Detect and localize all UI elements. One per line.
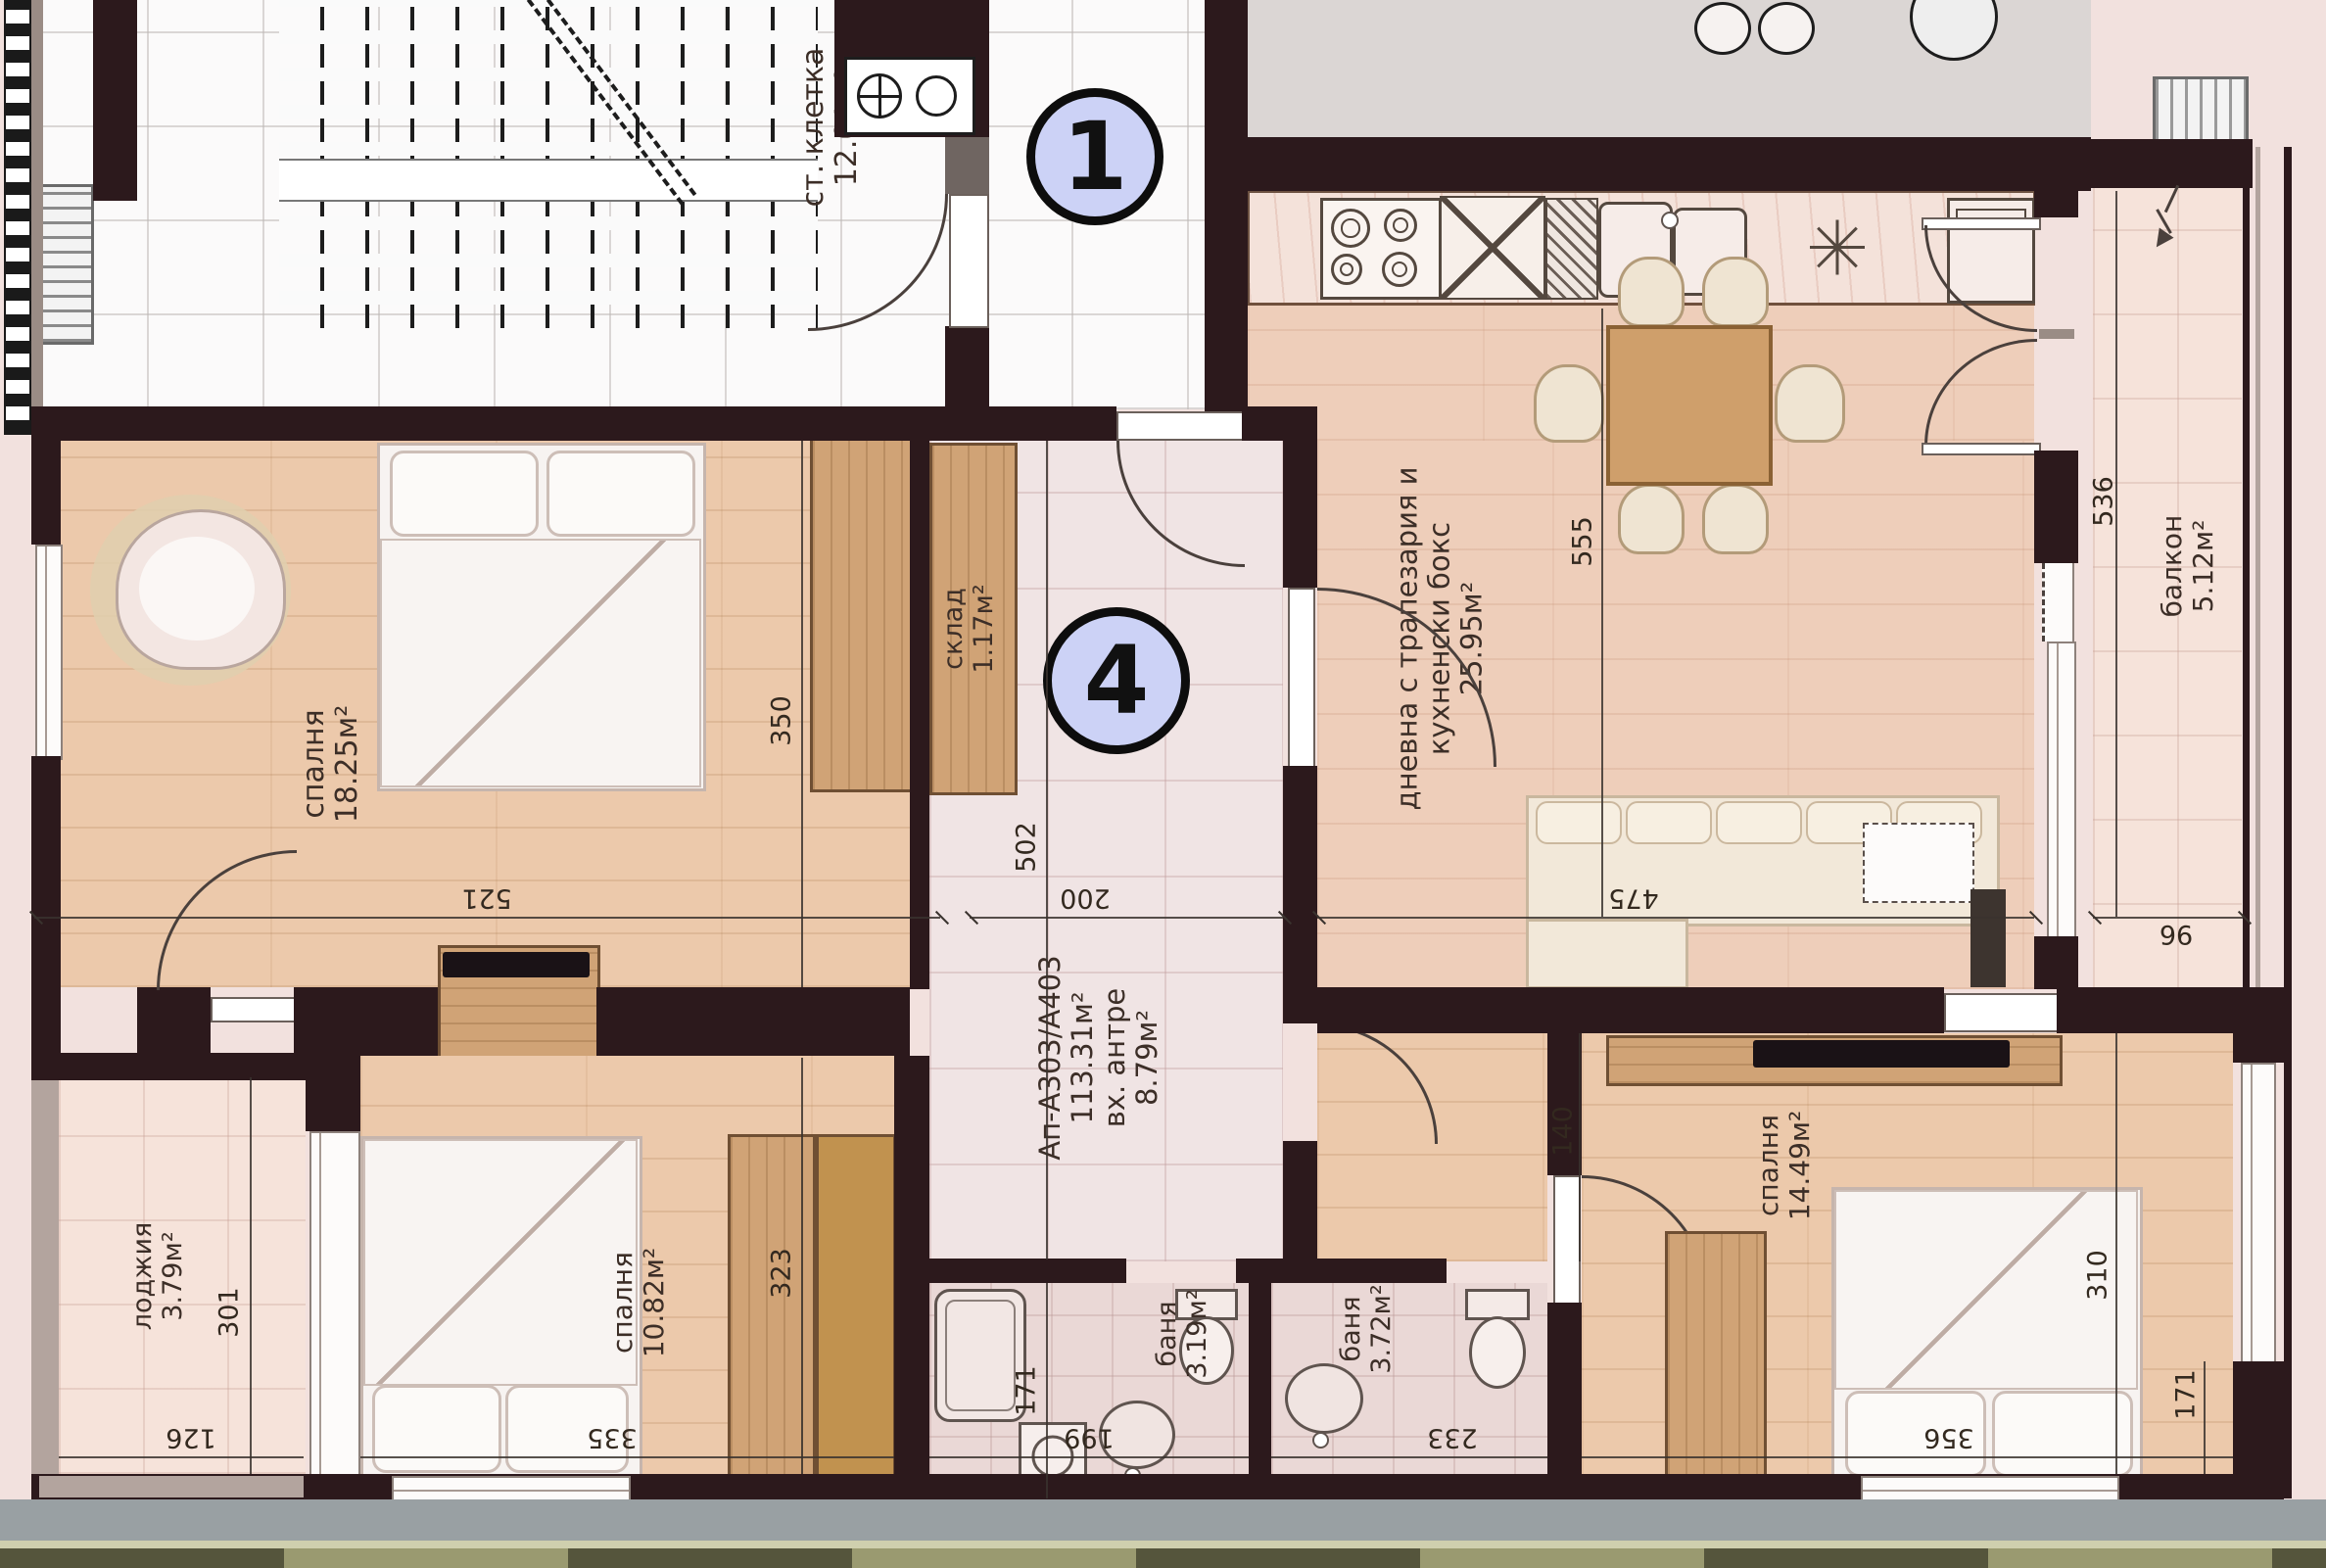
room-label-bedroom-bottom-left: спалня 10.82м² bbox=[607, 1248, 670, 1358]
sofa-cushion bbox=[1626, 801, 1712, 844]
room-name: спалня bbox=[607, 1248, 639, 1358]
dim-line bbox=[250, 1077, 252, 1474]
wall bbox=[1283, 766, 1317, 989]
apartment-id: Ап-А303/А403 bbox=[1034, 955, 1067, 1160]
window bbox=[2047, 641, 2076, 942]
wall bbox=[1317, 987, 1944, 1033]
ground-line bbox=[0, 1541, 2326, 1548]
pillow bbox=[546, 451, 695, 537]
apartment-label: Ап-А303/А403 113.31м² вх. антре 8.79м² bbox=[1034, 955, 1163, 1160]
floor-plan: ст. клетка 12.01м² 1 bbox=[0, 0, 2326, 1568]
toilet-icon bbox=[1469, 1316, 1526, 1389]
wall bbox=[31, 1053, 306, 1080]
wall bbox=[910, 1259, 1126, 1283]
dining-chair bbox=[1702, 484, 1769, 554]
loggia-rail-bottom bbox=[39, 1476, 304, 1497]
dim-line bbox=[970, 917, 1283, 919]
dimension: 475 bbox=[1608, 883, 1659, 914]
door-leaf bbox=[1288, 588, 1315, 770]
dimension: 521 bbox=[461, 883, 512, 914]
wardrobe bbox=[810, 424, 914, 792]
dimension: 502 bbox=[1012, 822, 1042, 873]
wall bbox=[2091, 139, 2253, 188]
wardrobe bbox=[816, 1134, 896, 1481]
dimension: 555 bbox=[1568, 516, 1598, 567]
dining-chair bbox=[1618, 257, 1685, 327]
sink-icon bbox=[1285, 1363, 1363, 1434]
door-mullion bbox=[2039, 329, 2074, 339]
ground-strip bbox=[0, 1548, 2326, 1568]
wall bbox=[1205, 0, 1248, 444]
dimension: 310 bbox=[2083, 1250, 2113, 1301]
dimension: 350 bbox=[767, 695, 797, 746]
sofa-chaise bbox=[1526, 919, 1688, 989]
dim-line bbox=[801, 1058, 803, 1474]
room-label-balcony: балкон 5.12м² bbox=[2157, 515, 2219, 618]
apartment-entry-door-leaf bbox=[1116, 411, 1246, 441]
room-name: склад bbox=[939, 584, 970, 673]
badge-number: 4 bbox=[1084, 626, 1150, 736]
dim-line bbox=[1046, 441, 1048, 1259]
entry-door-leaf bbox=[949, 194, 989, 328]
wall bbox=[894, 1056, 929, 1498]
dimension: 199 bbox=[1064, 1423, 1115, 1453]
wall bbox=[1249, 1283, 1271, 1498]
dim-line bbox=[34, 917, 940, 919]
dimension: 96 bbox=[2160, 922, 2193, 952]
armchair-cushion bbox=[139, 537, 255, 641]
door-leaf bbox=[1553, 1175, 1581, 1307]
window bbox=[1861, 1476, 2119, 1501]
dining-chair bbox=[1775, 364, 1845, 443]
dimension: 171 bbox=[1012, 1365, 1042, 1416]
stove-icon bbox=[1320, 198, 1442, 300]
wardrobe bbox=[1665, 1231, 1767, 1480]
wall bbox=[306, 1053, 360, 1131]
dimension: 140 bbox=[1548, 1106, 1579, 1157]
room-area: 5.12м² bbox=[2188, 515, 2219, 618]
window bbox=[2241, 1063, 2276, 1365]
ground-band bbox=[0, 1499, 2326, 1541]
balcony-rail-outer bbox=[2255, 147, 2260, 991]
dining-chair bbox=[1618, 484, 1685, 554]
dim-line bbox=[1271, 1456, 1547, 1458]
room-label-storage: склад 1.17м² bbox=[939, 584, 1000, 673]
room-label-bath-right: баня 3.72м² bbox=[1337, 1284, 1398, 1373]
dim-line bbox=[2115, 1033, 2117, 1474]
dimension: 301 bbox=[214, 1287, 245, 1338]
room-name: баня bbox=[1337, 1284, 1367, 1373]
dim-line bbox=[1582, 1456, 2233, 1458]
wall bbox=[2034, 936, 2078, 989]
faucet-icon bbox=[1312, 1432, 1329, 1449]
window bbox=[392, 1476, 631, 1501]
room-area: 14.49м² bbox=[1784, 1111, 1816, 1221]
vent-symbol-icon bbox=[857, 73, 902, 119]
unit-badge-1: 1 bbox=[1026, 88, 1163, 225]
blanket bbox=[363, 1139, 638, 1386]
dining-table bbox=[1606, 325, 1773, 486]
unit-badge-4: 4 bbox=[1043, 607, 1190, 754]
dim-line bbox=[360, 1456, 894, 1458]
wall bbox=[294, 987, 438, 1056]
wall bbox=[2284, 147, 2292, 1498]
dim-line bbox=[1317, 917, 2034, 919]
dimension: 200 bbox=[1060, 883, 1111, 914]
stair-landing bbox=[279, 159, 818, 202]
pillow bbox=[390, 451, 539, 537]
dimension: 536 bbox=[2089, 476, 2119, 527]
sofa-cushion bbox=[1716, 801, 1802, 844]
wall bbox=[910, 409, 929, 989]
room-area: 3.72м² bbox=[1367, 1284, 1398, 1373]
door-leaf bbox=[211, 997, 298, 1022]
wall-top-hall bbox=[31, 406, 1116, 441]
blanket bbox=[380, 539, 701, 787]
room-name: спалня bbox=[298, 705, 331, 824]
dimension: 335 bbox=[587, 1423, 638, 1453]
room-name: балкон bbox=[2157, 515, 2188, 618]
dimension: 126 bbox=[166, 1423, 216, 1453]
wall bbox=[31, 0, 43, 409]
pillow bbox=[372, 1385, 501, 1473]
dim-line bbox=[1579, 1033, 1581, 1261]
drainer-icon bbox=[1545, 198, 1598, 300]
wall bbox=[1283, 1141, 1317, 1261]
coat-rail bbox=[1863, 823, 1974, 903]
wall-outer-left bbox=[31, 756, 61, 1056]
wall bbox=[2233, 987, 2284, 1063]
dimension: 356 bbox=[1923, 1423, 1974, 1453]
tv-icon bbox=[1753, 1040, 2010, 1068]
wall bbox=[1547, 1303, 1582, 1498]
room-label-loggia: лоджия 3.79м² bbox=[128, 1222, 189, 1331]
room-name: ст. клетка bbox=[797, 48, 831, 208]
dim-line bbox=[1601, 309, 1603, 917]
dimension: 233 bbox=[1427, 1423, 1478, 1453]
room-label-bedroom-bottom-right: спалня 14.49м² bbox=[1753, 1111, 1816, 1221]
dim-line bbox=[2093, 917, 2243, 919]
wall bbox=[2034, 451, 2078, 563]
wall bbox=[2034, 147, 2078, 217]
room-area: 18.25м² bbox=[331, 705, 364, 824]
neighbour-shaft bbox=[844, 57, 975, 135]
dining-chair bbox=[1702, 257, 1769, 327]
balcony-door-leaf bbox=[1922, 443, 2041, 455]
tv-icon bbox=[443, 952, 590, 977]
wall bbox=[2233, 1361, 2284, 1477]
wall bbox=[945, 326, 989, 409]
pillow bbox=[1992, 1391, 2133, 1477]
wall bbox=[1283, 409, 1317, 588]
insulation-hatch bbox=[4, 0, 31, 435]
apartment-total-area: 113.31м² bbox=[1067, 955, 1099, 1160]
window-loggia bbox=[309, 1131, 360, 1478]
wall bbox=[1283, 989, 1317, 1023]
room-name: баня bbox=[1153, 1289, 1183, 1378]
cooktop-symbol-icon bbox=[1810, 219, 1865, 274]
dining-chair bbox=[1534, 364, 1604, 443]
room-label-bath-left: баня 3.19м² bbox=[1153, 1289, 1213, 1378]
door-leaf bbox=[1944, 993, 2061, 1032]
dim-line bbox=[59, 1456, 304, 1458]
dimension: 323 bbox=[767, 1248, 797, 1299]
cabinet bbox=[1970, 889, 2006, 987]
faucet-icon bbox=[1661, 212, 1679, 229]
dim-line bbox=[801, 441, 803, 987]
wall bbox=[596, 987, 910, 1056]
kitchen-cabinet bbox=[1440, 196, 1545, 300]
room-area: 10.82м² bbox=[639, 1248, 670, 1358]
dim-line bbox=[929, 1456, 1249, 1458]
room-name: лоджия bbox=[128, 1222, 159, 1331]
wall bbox=[137, 987, 211, 1056]
room-label-bedroom-left: спалня 18.25м² bbox=[298, 705, 364, 824]
sofa-cushion bbox=[1536, 801, 1622, 844]
wall bbox=[1236, 1259, 1447, 1283]
apartment-entry-area: 8.79м² bbox=[1131, 955, 1163, 1160]
room-area: 3.79м² bbox=[159, 1222, 189, 1331]
balcony-rail bbox=[2243, 147, 2250, 991]
room-area: 1.17м² bbox=[970, 584, 1000, 673]
apartment-entry-name: вх. антре bbox=[1099, 955, 1131, 1160]
dim-line bbox=[1046, 1283, 1048, 1498]
dimension: 171 bbox=[2171, 1369, 2202, 1420]
dim-line bbox=[2115, 191, 2117, 917]
wall bbox=[93, 0, 137, 201]
exit-arrow-icon bbox=[2151, 184, 2194, 253]
sink-icon bbox=[1758, 2, 1815, 55]
room-area: 3.19м² bbox=[1183, 1289, 1213, 1378]
wall-top bbox=[1205, 137, 2091, 191]
sink-icon bbox=[1694, 2, 1751, 55]
window-sash bbox=[2042, 563, 2074, 641]
window bbox=[35, 545, 63, 760]
loggia-rail bbox=[31, 1077, 59, 1498]
badge-number: 1 bbox=[1063, 102, 1128, 212]
room-name: спалня bbox=[1753, 1111, 1784, 1221]
radiator-icon bbox=[39, 184, 94, 345]
vent-symbol-icon bbox=[916, 75, 957, 117]
